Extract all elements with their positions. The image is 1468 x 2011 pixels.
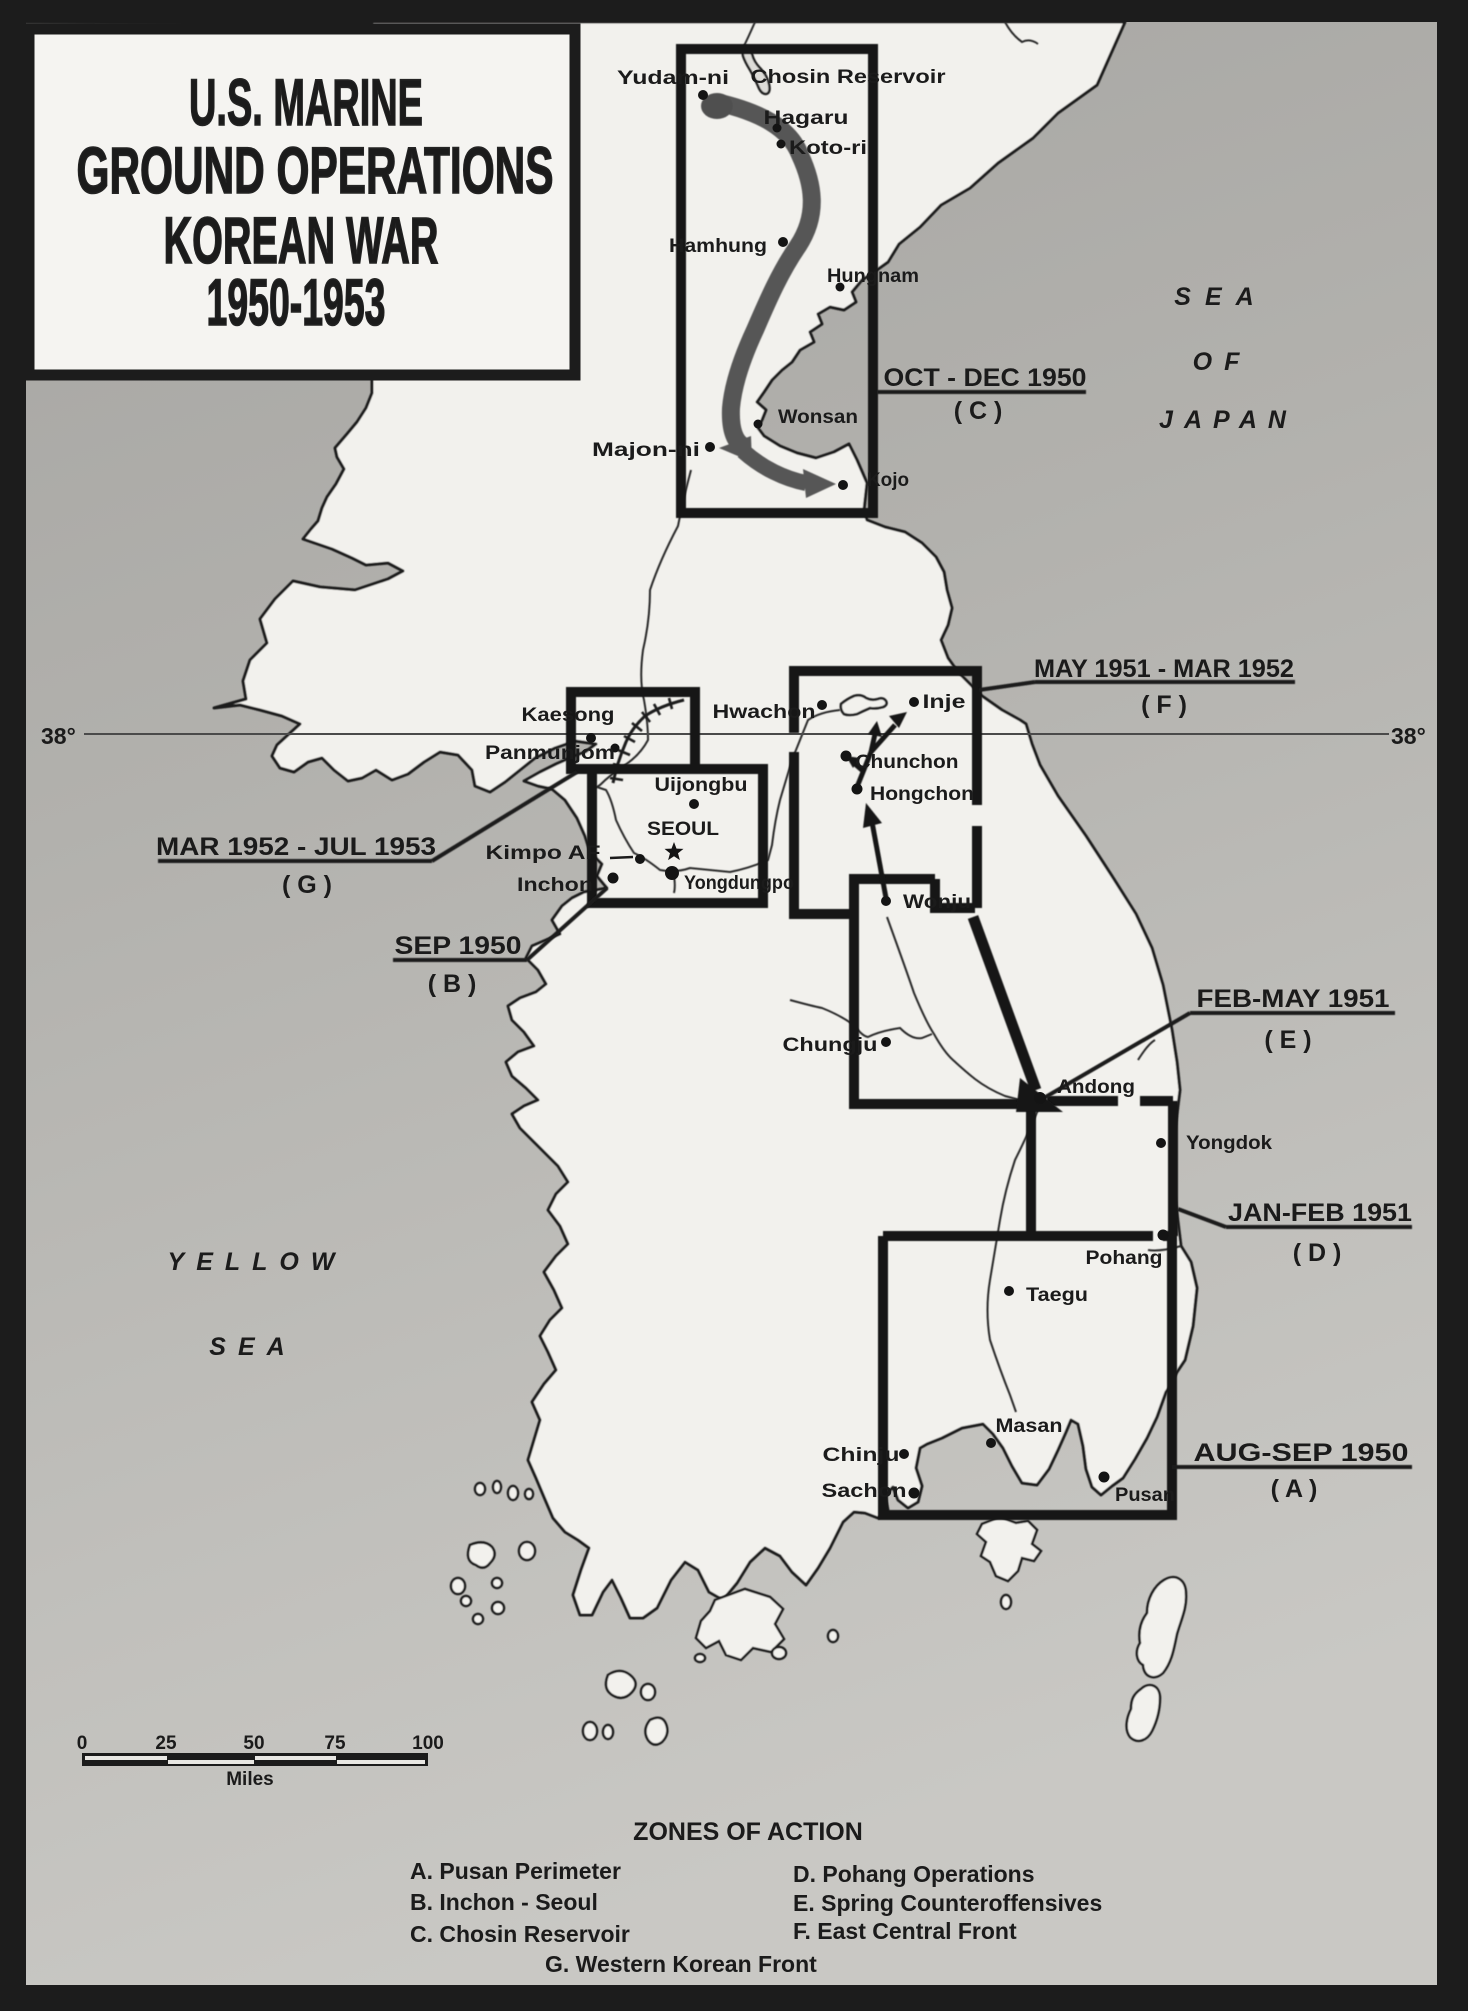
- svg-text:OF: OF: [1193, 348, 1252, 376]
- svg-text:Andong: Andong: [1057, 1077, 1135, 1098]
- svg-text:SEA: SEA: [1174, 283, 1267, 311]
- svg-text:( B ): ( B ): [428, 970, 477, 998]
- svg-text:Koto-ri: Koto-ri: [789, 138, 867, 159]
- svg-text:Hungnam: Hungnam: [827, 266, 919, 287]
- svg-text:Miles: Miles: [226, 1769, 274, 1790]
- svg-text:SEP 1950: SEP 1950: [395, 932, 522, 960]
- svg-text:Majon-ni: Majon-ni: [592, 440, 700, 461]
- svg-text:1950-1953: 1950-1953: [207, 265, 386, 339]
- svg-text:JAN-FEB 1951: JAN-FEB 1951: [1228, 1199, 1412, 1227]
- svg-text:U.S. MARINE: U.S. MARINE: [189, 65, 423, 139]
- svg-text:Pusan: Pusan: [1115, 1485, 1175, 1506]
- svg-text:Kimpo AF: Kimpo AF: [486, 843, 601, 864]
- svg-text:SEOUL: SEOUL: [647, 819, 719, 840]
- svg-text:( G ): ( G ): [282, 871, 332, 899]
- svg-text:AUG-SEP 1950: AUG-SEP 1950: [1194, 1439, 1409, 1467]
- svg-text:MAR 1952 - JUL 1953: MAR 1952 - JUL 1953: [156, 833, 436, 861]
- svg-text:Chosin Reservoir: Chosin Reservoir: [751, 67, 947, 88]
- svg-text:Kojo: Kojo: [867, 470, 909, 491]
- svg-text:G. Western Korean Front: G. Western Korean Front: [545, 1951, 817, 1977]
- svg-text:D. Pohang Operations: D. Pohang Operations: [793, 1861, 1035, 1887]
- svg-text:A. Pusan Perimeter: A. Pusan Perimeter: [410, 1858, 621, 1884]
- svg-text:B. Inchon - Seoul: B. Inchon - Seoul: [410, 1889, 598, 1915]
- svg-text:OCT - DEC 1950: OCT - DEC 1950: [884, 364, 1087, 392]
- svg-text:E. Spring Counteroffensives: E. Spring Counteroffensives: [793, 1890, 1102, 1916]
- svg-text:0: 0: [77, 1733, 88, 1754]
- svg-text:38°: 38°: [1391, 723, 1426, 749]
- svg-text:Pohang: Pohang: [1086, 1248, 1163, 1269]
- svg-text:MAY 1951 - MAR 1952: MAY 1951 - MAR 1952: [1034, 655, 1294, 683]
- svg-text:38°: 38°: [41, 723, 76, 749]
- svg-text:( F ): ( F ): [1141, 691, 1187, 719]
- svg-text:( E ): ( E ): [1264, 1026, 1311, 1054]
- svg-text:Chinju: Chinju: [823, 1445, 900, 1466]
- svg-text:50: 50: [243, 1733, 264, 1754]
- svg-text:Taegu: Taegu: [1026, 1285, 1088, 1306]
- svg-text:Hongchon: Hongchon: [870, 784, 974, 805]
- svg-text:( D ): ( D ): [1293, 1239, 1342, 1267]
- svg-text:75: 75: [324, 1733, 346, 1754]
- svg-text:F. East Central Front: F. East Central Front: [793, 1918, 1017, 1944]
- svg-text:Yongdok: Yongdok: [1186, 1133, 1272, 1154]
- svg-text:YELLOW: YELLOW: [168, 1248, 347, 1276]
- svg-text:GROUND OPERATIONS: GROUND OPERATIONS: [77, 133, 554, 207]
- svg-text:Wonju: Wonju: [903, 892, 971, 913]
- svg-text:( C ): ( C ): [954, 397, 1003, 425]
- svg-text:C. Chosin Reservoir: C. Chosin Reservoir: [410, 1921, 630, 1947]
- svg-text:Uijongbu: Uijongbu: [655, 775, 748, 796]
- svg-text:Chunchon: Chunchon: [856, 752, 959, 773]
- svg-text:JAPAN: JAPAN: [1159, 406, 1297, 434]
- svg-text:Sachon: Sachon: [822, 1481, 907, 1502]
- svg-text:ZONES OF ACTION: ZONES OF ACTION: [633, 1818, 863, 1846]
- svg-text:Hwachon: Hwachon: [713, 702, 816, 723]
- svg-text:25: 25: [155, 1733, 177, 1754]
- svg-text:Kaesong: Kaesong: [522, 705, 615, 726]
- svg-text:Inchon: Inchon: [517, 875, 593, 896]
- svg-text:Panmunjom: Panmunjom: [485, 743, 615, 764]
- svg-text:Wonsan: Wonsan: [778, 407, 858, 428]
- svg-text:Masan: Masan: [996, 1416, 1063, 1437]
- svg-text:SEA: SEA: [209, 1333, 296, 1361]
- svg-text:Yongdungpo: Yongdungpo: [684, 873, 794, 894]
- svg-text:Hamhung: Hamhung: [669, 236, 767, 257]
- svg-text:Yudam-ni: Yudam-ni: [617, 68, 729, 89]
- svg-text:Hagaru: Hagaru: [764, 108, 849, 129]
- svg-text:( A ): ( A ): [1271, 1475, 1318, 1503]
- svg-text:Inje: Inje: [923, 692, 966, 713]
- svg-text:FEB-MAY 1951: FEB-MAY 1951: [1197, 985, 1390, 1013]
- svg-text:100: 100: [412, 1733, 444, 1754]
- svg-text:Chungju: Chungju: [783, 1035, 878, 1056]
